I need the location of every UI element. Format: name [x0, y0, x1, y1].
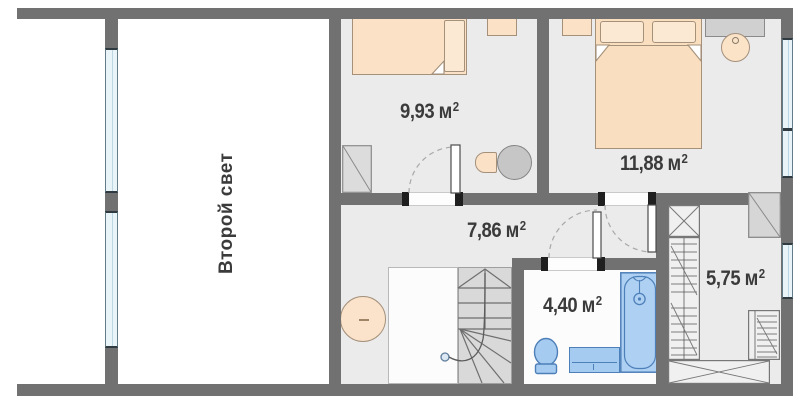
single-bed — [352, 17, 467, 75]
window-left-lower — [105, 211, 118, 348]
wall-bottom — [17, 384, 793, 396]
double-bed — [595, 17, 702, 149]
room-label-dressing: 5,75м2 — [706, 267, 765, 291]
area-unit: м — [582, 294, 595, 317]
area-unit: м — [745, 267, 758, 290]
window-right-bedroom — [782, 38, 793, 178]
wardrobe-small-bedroom — [342, 145, 372, 193]
walk-line-start — [441, 353, 449, 361]
area-sup: 2 — [520, 218, 526, 233]
pouf — [340, 296, 386, 342]
door-jamb — [402, 192, 409, 206]
closet-hanging-rail — [668, 237, 700, 360]
wall-top — [17, 8, 793, 19]
wall-closet-left — [656, 205, 668, 384]
area-value: 9,93 — [400, 100, 434, 123]
floor-plan-canvas: Второй свет 9,93м2 11,88м2 7,86м2 4,40м2… — [0, 0, 800, 402]
glass-line — [788, 245, 789, 297]
bed-pillow-left — [600, 21, 644, 43]
area-value: 7,86 — [467, 219, 501, 242]
room-label-bedroom-large: 11,88м2 — [620, 152, 687, 176]
void-label: Второй свет — [216, 152, 238, 274]
nightstand-large-bedroom — [562, 17, 592, 36]
staircase — [430, 267, 512, 384]
area-sup: 2 — [682, 151, 688, 166]
closet-shelf-unit — [748, 310, 780, 360]
table-small-bedroom — [497, 145, 532, 180]
desk-chair-cushion — [732, 37, 739, 44]
area-sup: 2 — [759, 266, 765, 281]
wall-bathroom-left — [512, 258, 524, 384]
room-label-bedroom-small: 9,93м2 — [400, 100, 459, 124]
window-left-upper — [105, 48, 118, 193]
vanity-basin-line — [572, 362, 617, 363]
closet-crossed-box — [668, 205, 700, 237]
area-unit: м — [667, 152, 680, 175]
doorway-bathroom — [548, 257, 597, 271]
toilet — [532, 337, 560, 375]
window-mullion — [783, 128, 792, 131]
area-unit: м — [439, 100, 452, 123]
chair-small-bedroom — [475, 152, 497, 173]
door-jamb — [455, 192, 463, 206]
room-label-hall: 7,86м2 — [467, 219, 526, 243]
glass-line — [788, 40, 789, 176]
glass-line — [112, 213, 113, 346]
glass-line — [112, 50, 113, 191]
pouf-mark — [359, 319, 369, 321]
wall-void-divider — [329, 19, 341, 384]
toilet-bowl — [535, 339, 558, 366]
door-jamb — [541, 257, 548, 271]
area-unit: м — [506, 219, 519, 242]
room-label-bathroom: 4,40м2 — [543, 294, 602, 318]
doorway-bedroom-small — [409, 192, 455, 206]
toilet-tank — [536, 364, 557, 374]
vanity-tap — [593, 364, 594, 370]
doorway-bedroom-large — [605, 192, 648, 206]
door-jamb — [648, 192, 656, 206]
closet-bottom-unit — [668, 360, 770, 384]
area-sup: 2 — [453, 99, 459, 114]
dresser-small-bedroom — [487, 17, 517, 36]
bed-pillow-right — [652, 21, 696, 43]
area-value: 5,75 — [706, 267, 740, 290]
door-jamb — [598, 192, 605, 206]
bathtub — [620, 272, 660, 373]
bed-pillow — [444, 20, 465, 72]
door-jamb — [597, 257, 605, 271]
drain-dot-icon — [638, 297, 641, 300]
desk-chair — [721, 33, 750, 62]
blanket-edge — [596, 45, 701, 46]
area-sup: 2 — [596, 293, 602, 308]
area-value: 11,88 — [620, 152, 663, 175]
window-right-closet — [782, 243, 793, 299]
sink-vanity — [569, 347, 620, 373]
wall-bedroom-divider — [537, 19, 549, 205]
area-value: 4,40 — [543, 294, 577, 317]
